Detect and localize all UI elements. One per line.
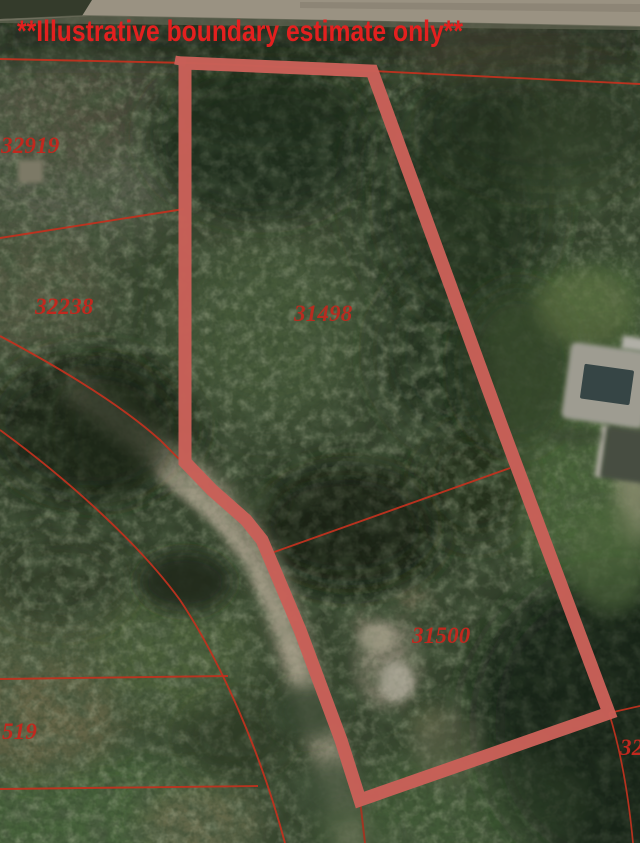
svg-text:32: 32 xyxy=(619,735,640,760)
svg-text:519: 519 xyxy=(2,719,37,744)
svg-text:32919: 32919 xyxy=(0,133,60,158)
svg-text:31498: 31498 xyxy=(293,301,353,326)
svg-text:32238: 32238 xyxy=(34,294,94,319)
svg-text:31500: 31500 xyxy=(411,623,471,648)
svg-text:**Illustrative boundary estima: **Illustrative boundary estimate only** xyxy=(17,15,463,48)
